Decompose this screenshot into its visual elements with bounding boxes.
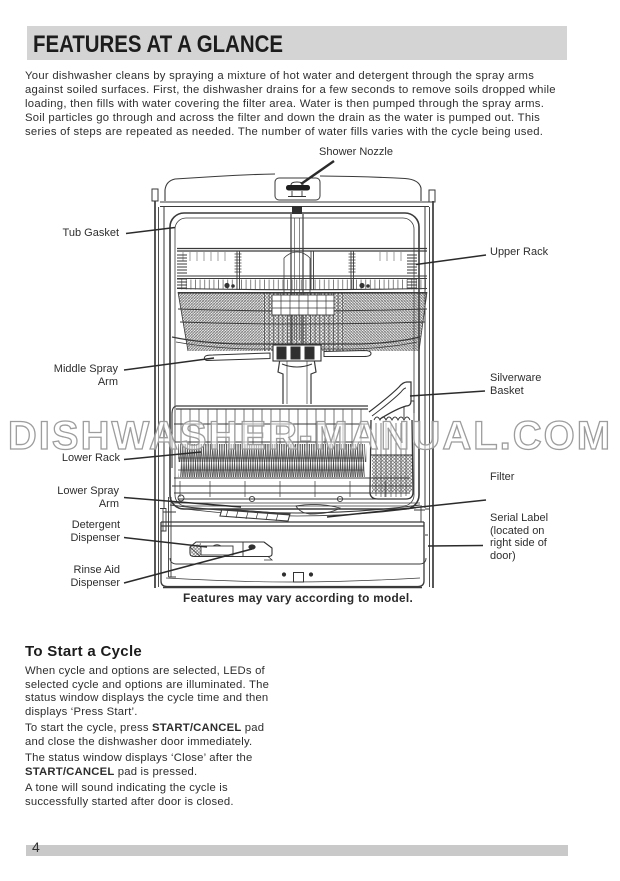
svg-text:DISHWASHER-MANUAL.COM: DISHWASHER-MANUAL.COM [8, 414, 612, 458]
